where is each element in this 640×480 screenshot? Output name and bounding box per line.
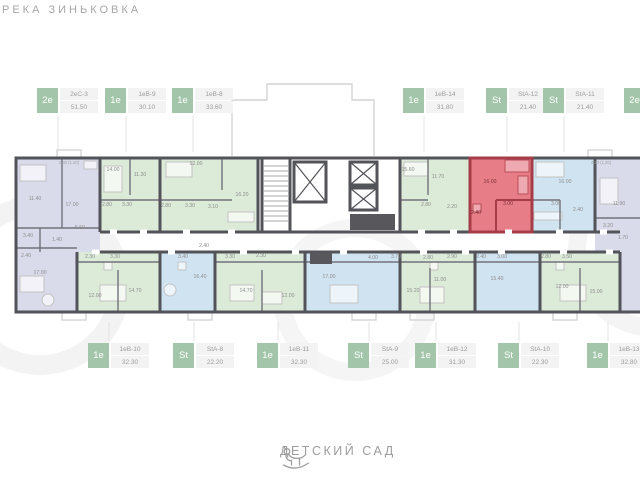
room-area-label: 2.40 (199, 243, 209, 249)
room-area-label: 3.00 (497, 254, 507, 260)
unit-area: 31.30 (438, 356, 476, 368)
room-area-label: 3.70 (391, 254, 401, 260)
room-area-label: 3.10 (208, 204, 218, 210)
room-area-label: 14.70 (240, 288, 253, 294)
unit-info-box: 1еВ-1132.30 (280, 343, 318, 368)
unit-area: 22.20 (196, 356, 234, 368)
unit-label-StA-12[interactable]: StStA-1221.40 (486, 88, 547, 113)
room-area-label: 2.80 (161, 203, 171, 209)
room-area-label: 2.80 (541, 254, 551, 260)
unit-type-badge: St (498, 343, 519, 368)
unit-code: 1еВ-14 (426, 88, 464, 100)
unit-code: 1еВ-8 (195, 88, 233, 100)
unit-info-box: 1еВ-1332.80 (610, 343, 640, 368)
unit-StA-8[interactable] (160, 252, 215, 312)
room-area-label: 3.30 (225, 254, 235, 260)
unit-1eB-11[interactable] (215, 252, 305, 312)
unit-info-box: StA-1221.40 (509, 88, 547, 113)
unit-info-box: StA-822.20 (196, 343, 234, 368)
unit-type-badge: 1е (105, 88, 126, 113)
unit-type-badge: 1е (415, 343, 436, 368)
unit-info-box: 1еВ-1231.30 (438, 343, 476, 368)
unit-area: 51.50 (60, 101, 98, 113)
unit-code: 1еВ-9 (128, 88, 166, 100)
unit-type-badge: 1е (257, 343, 278, 368)
unit-type-badge: 1е (403, 88, 424, 113)
unit-area: 32.80 (610, 356, 640, 368)
unit-type-badge: 1е (172, 88, 193, 113)
room-area-label: 12.00 (190, 161, 203, 167)
unit-type-badge: St (348, 343, 369, 368)
unit-area: 31.80 (426, 101, 464, 113)
room-area-label: 2.30 (256, 253, 266, 259)
unit-type-badge: St (173, 343, 194, 368)
room-area-label: 11.00 (434, 277, 447, 283)
unit-type-badge: 2е (624, 88, 640, 113)
room-area-label: 3.00 (503, 201, 513, 207)
room-area-label: 15.20 (407, 288, 420, 294)
room-area-label: 2.40 (21, 253, 31, 259)
unit-area: 33.60 (195, 101, 233, 113)
unit-info-box: 1еВ-1032.30 (111, 343, 149, 368)
room-area-label: 3.30 (122, 202, 132, 208)
room-area-label: 1.70 (618, 235, 628, 241)
unit-code: StA-11 (566, 88, 604, 100)
room-area-label: 2.80 (423, 255, 433, 261)
unit-type-badge: St (486, 88, 507, 113)
room-area-label: 3.40 (178, 254, 188, 260)
unit-info-box: StA-925.00 (371, 343, 409, 368)
room-area-label: 4.00 (368, 255, 378, 261)
roof-parapet-outline (232, 84, 374, 156)
map-label-river: РЕКА ЗИНЬКОВКА (2, 4, 141, 16)
unit-info-box: StA-1121.40 (566, 88, 604, 113)
unit-label-StA-8[interactable]: StStA-822.20 (173, 343, 234, 368)
floorplan-svg: 11.4017.005.503.401.402.4017.0014.0011.3… (0, 0, 640, 480)
room-area-label: 15.60 (402, 167, 415, 173)
unit-label-1еВ-12[interactable]: 1е1еВ-1231.30 (415, 343, 476, 368)
core-shafts (263, 162, 395, 264)
unit-label-1еВ-8[interactable]: 1е1еВ-833.60 (172, 88, 233, 113)
room-area-label: 2.30 (1.20) (591, 160, 612, 165)
unit-area: 22.30 (521, 356, 559, 368)
unit-label-1еВ-13[interactable]: 1е1еВ-1332.80 (587, 343, 640, 368)
room-area-label: 14.00 (107, 167, 120, 173)
room-area-label: 3.50 (562, 254, 572, 260)
unit-area: 32.30 (111, 356, 149, 368)
room-area-label: 16.40 (194, 274, 207, 280)
unit-code: StA-12 (509, 88, 547, 100)
rocking-horse-icon (280, 444, 312, 471)
unit-type-badge: 2е (37, 88, 58, 113)
room-area-label: 3.30 (110, 254, 120, 260)
room-area-label: 2.40 (573, 207, 583, 213)
room-area-label: 12.00 (282, 293, 295, 299)
room-area-label: 2.40 (471, 210, 481, 216)
room-area-label: 3.30 (185, 203, 195, 209)
room-area-label: 17.00 (323, 274, 336, 280)
room-area-label: 16.00 (559, 179, 572, 185)
unit-label-1еВ-10[interactable]: 1е1еВ-1032.30 (88, 343, 149, 368)
room-area-label: 1.40 (52, 237, 62, 243)
room-area-label: 11.70 (432, 174, 445, 180)
room-area-label: 12.00 (89, 293, 102, 299)
floorplan-page: 11.4017.005.503.401.402.4017.0014.0011.3… (0, 0, 640, 480)
unit-type-badge: St (543, 88, 564, 113)
room-area-label: 3.20 (603, 223, 613, 229)
unit-StA-10[interactable] (475, 252, 540, 312)
room-area-label: 12.00 (556, 284, 569, 290)
room-area-label: 3.00 (551, 201, 561, 207)
room-area-label: 16.00 (484, 179, 497, 185)
room-area-label: 17.00 (34, 270, 47, 276)
kindergarten-callout: ДЕТСКИЙ САД (280, 444, 396, 458)
stair-icon (263, 166, 289, 221)
unit-code: 1еВ-11 (280, 343, 318, 355)
room-area-label: 17.00 (66, 202, 79, 208)
unit-label-1еВ-9[interactable]: 1е1еВ-930.10 (105, 88, 166, 113)
unit-info-box: 1еВ-1431.80 (426, 88, 464, 113)
room-area-label: 11.90 (613, 201, 626, 207)
room-area-label: 2.30 (1.20) (59, 160, 80, 165)
unit-code: StA-8 (196, 343, 234, 355)
unit-label-StA-11[interactable]: StStA-1121.40 (543, 88, 604, 113)
room-area-label: 3.40 (23, 233, 33, 239)
unit-label-1еВ-11[interactable]: 1е1еВ-1132.30 (257, 343, 318, 368)
unit-code: StA-9 (371, 343, 409, 355)
unit-code: 2еС-3 (60, 88, 98, 100)
room-area-label: 11.40 (29, 196, 42, 202)
unit-label-StA-9[interactable]: StStA-925.00 (348, 343, 409, 368)
room-area-label: 2.80 (421, 202, 431, 208)
unit-area: 30.10 (128, 101, 166, 113)
unit-info-box: 2еС-351.50 (60, 88, 98, 113)
unit-code: 1еВ-12 (438, 343, 476, 355)
room-area-label: 2.20 (447, 204, 457, 210)
room-area-label: 14.70 (129, 288, 142, 294)
room-area-label: 2.90 (447, 254, 457, 260)
room-area-label: 15.40 (491, 276, 504, 282)
unit-info-box: 1еВ-930.10 (128, 88, 166, 113)
unit-info-box: 1еВ-833.60 (195, 88, 233, 113)
unit-type-badge: 1е (587, 343, 608, 368)
unit-code: 1еВ-10 (111, 343, 149, 355)
room-area-label: 2.40 (476, 254, 486, 260)
room-area-label: 15.00 (590, 289, 603, 295)
unit-type-badge: 1е (88, 343, 109, 368)
unit-label-StA-10[interactable]: StStA-1022.30 (498, 343, 559, 368)
unit-area: 21.40 (509, 101, 547, 113)
room-area-label: 2.30 (85, 254, 95, 260)
unit-area: 25.00 (371, 356, 409, 368)
unit-code: StA-10 (521, 343, 559, 355)
room-area-label: 11.30 (134, 172, 147, 178)
unit-area: 32.30 (280, 356, 318, 368)
room-area-label: 5.50 (75, 225, 85, 231)
room-area-label: 16.20 (236, 192, 249, 198)
unit-area: 21.40 (566, 101, 604, 113)
unit-label-2еС-3[interactable]: 2е2еС-351.50 (37, 88, 98, 113)
unit-label-2е[interactable]: 2е (624, 88, 640, 113)
unit-code: 1еВ-13 (610, 343, 640, 355)
unit-info-box: StA-1022.30 (521, 343, 559, 368)
unit-label-1еВ-14[interactable]: 1е1еВ-1431.80 (403, 88, 464, 113)
room-area-label: 2.80 (102, 202, 112, 208)
